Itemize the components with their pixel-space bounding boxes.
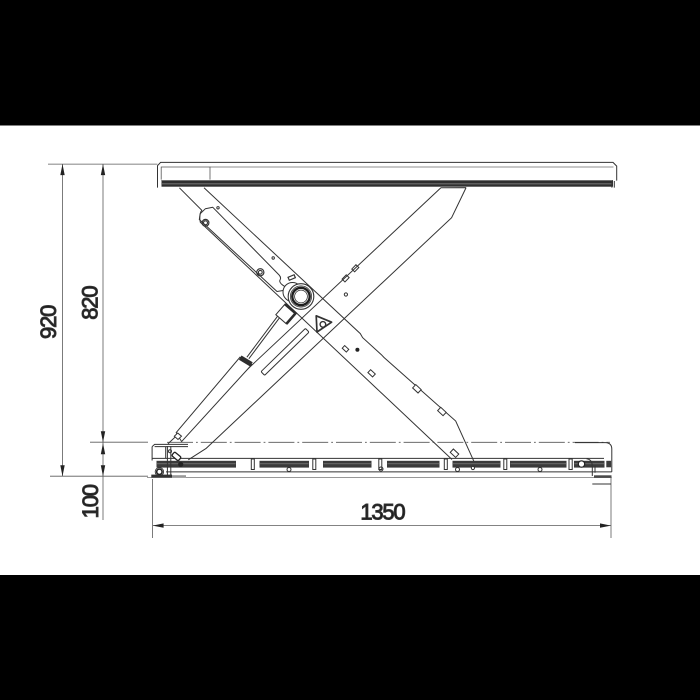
svg-text:100: 100 <box>78 484 103 518</box>
svg-text:1350: 1350 <box>360 500 405 525</box>
svg-text:820: 820 <box>77 286 102 320</box>
svg-text:920: 920 <box>36 305 61 339</box>
